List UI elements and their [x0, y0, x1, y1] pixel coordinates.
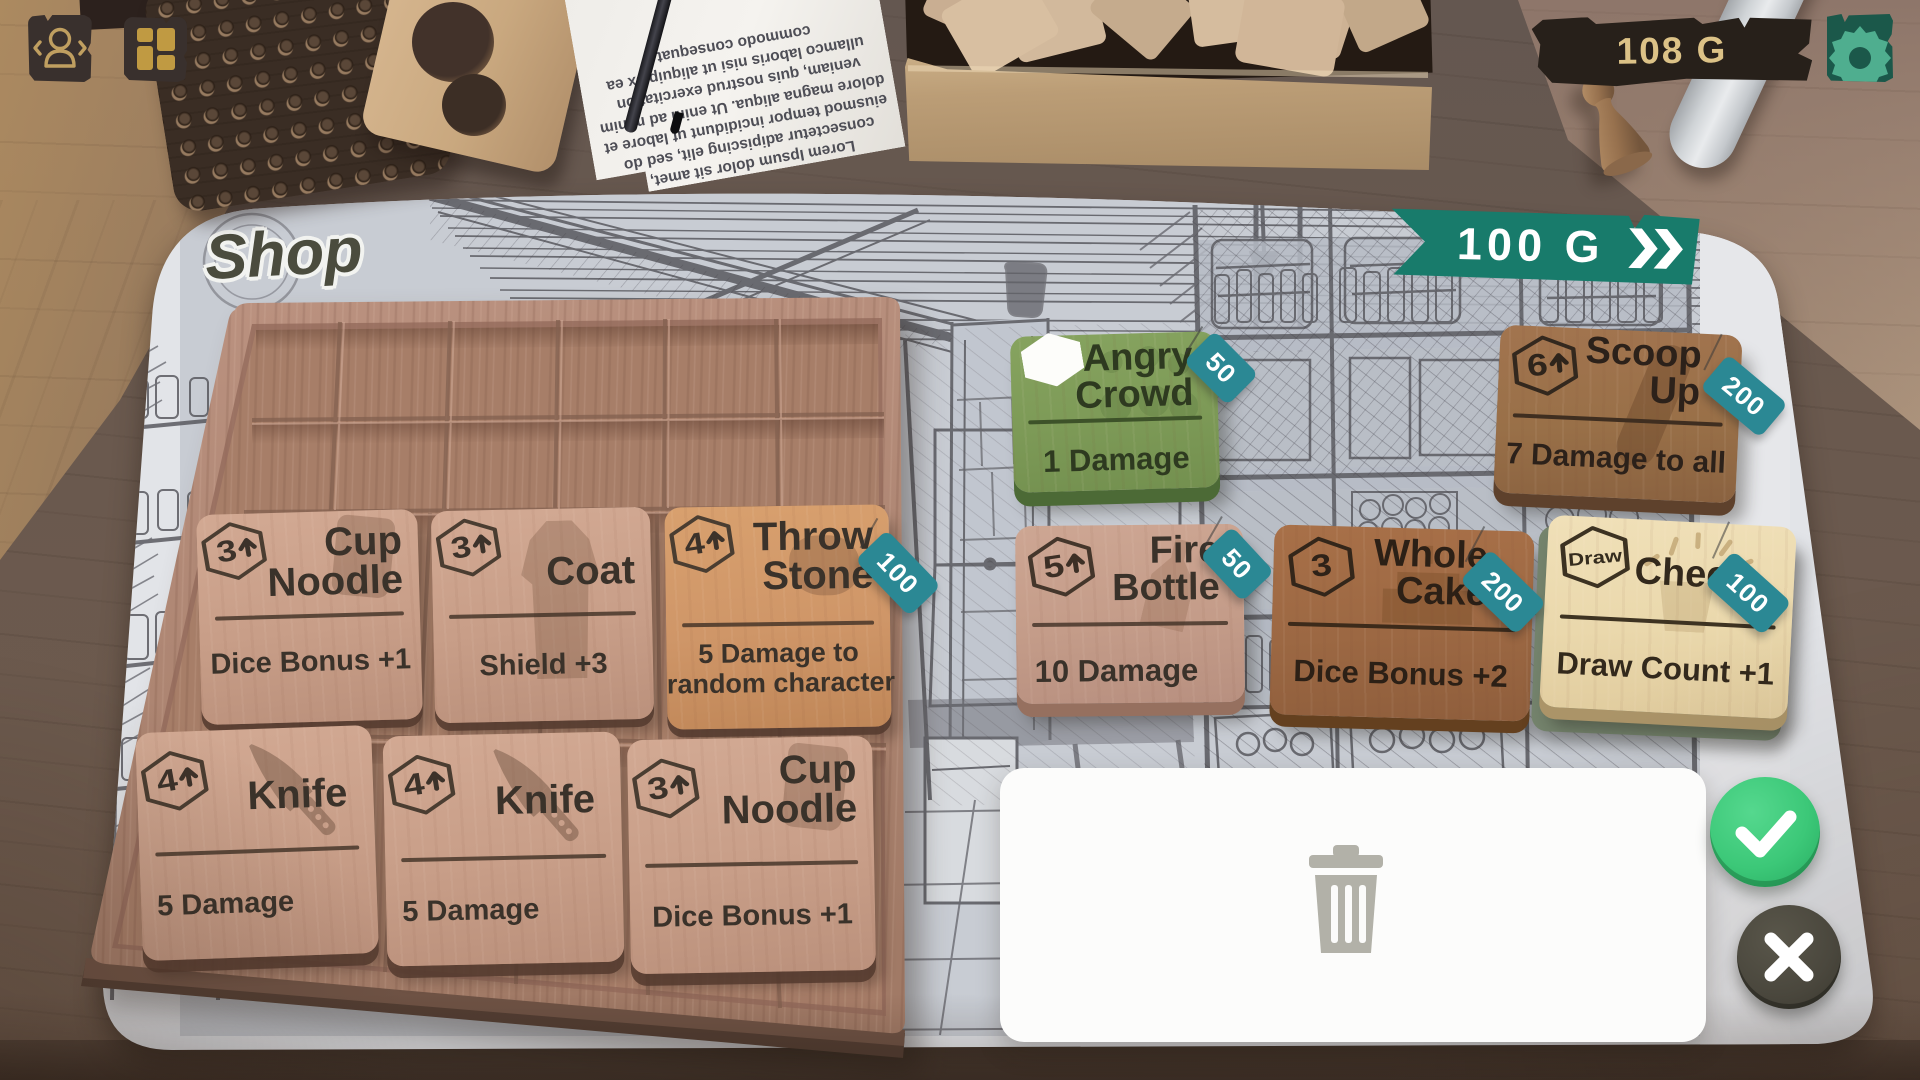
svg-text:4: 4 — [682, 526, 708, 562]
svg-text:6: 6 — [1525, 347, 1549, 383]
svg-text:4: 4 — [154, 763, 180, 800]
svg-text:5: 5 — [1041, 549, 1067, 586]
svg-text:4: 4 — [401, 766, 427, 803]
svg-text:3: 3 — [449, 530, 474, 566]
svg-text:3: 3 — [214, 534, 239, 570]
svg-text:Draw: Draw — [1567, 546, 1623, 570]
svg-text:3: 3 — [1309, 548, 1333, 584]
svg-text:3: 3 — [645, 770, 671, 807]
